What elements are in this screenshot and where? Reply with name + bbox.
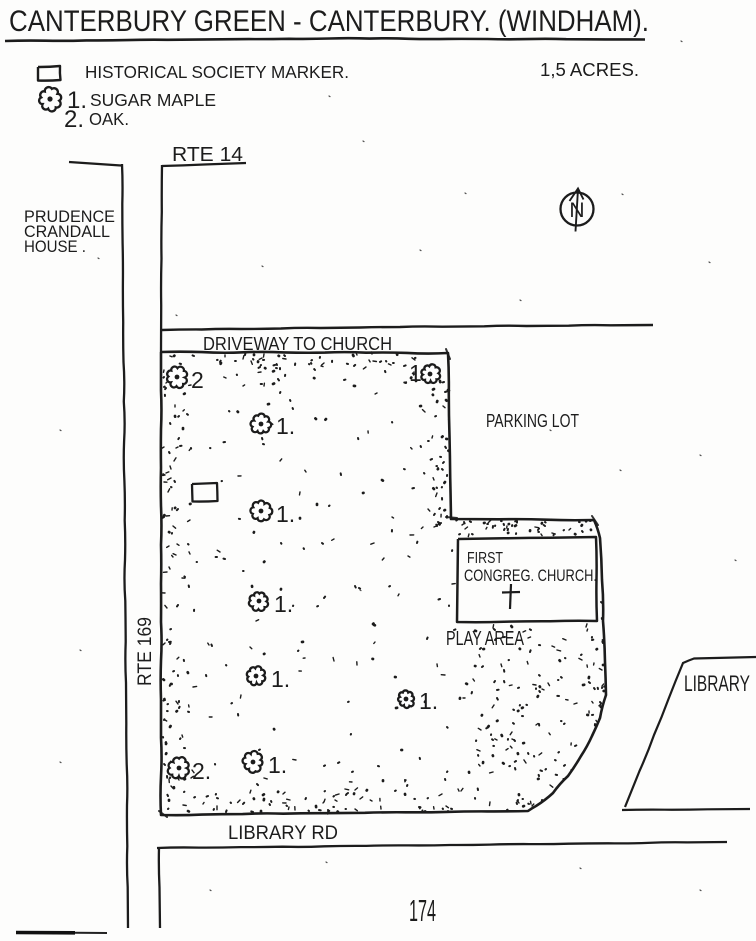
svg-text:1.: 1.	[271, 666, 290, 692]
svg-text:RTE 169: RTE 169	[135, 617, 156, 686]
svg-text:CANTERBURY GREEN - CANTERBURY.: CANTERBURY GREEN - CANTERBURY. (WINDHAM)…	[9, 5, 649, 38]
svg-text:PARKING LOT: PARKING LOT	[486, 411, 579, 431]
svg-text:CONGREG. CHURCH.: CONGREG. CHURCH.	[464, 567, 597, 585]
svg-text:1: 1	[409, 360, 422, 386]
svg-text:PLAY AREA: PLAY AREA	[446, 628, 524, 650]
svg-text:HISTORICAL SOCIETY MARKER.: HISTORICAL SOCIETY MARKER.	[85, 62, 349, 82]
svg-text:FIRST: FIRST	[467, 550, 503, 567]
svg-text:1,5 ACRES.: 1,5 ACRES.	[540, 60, 639, 80]
svg-text:2.: 2.	[64, 106, 84, 133]
svg-text:2: 2	[191, 367, 204, 393]
svg-text:1.: 1.	[268, 752, 287, 778]
svg-text:1.: 1.	[419, 688, 438, 714]
svg-text:1.: 1.	[276, 501, 295, 527]
svg-text:174: 174	[409, 893, 436, 928]
svg-text:DRIVEWAY TO CHURCH: DRIVEWAY TO CHURCH	[203, 333, 392, 354]
svg-text:1.: 1.	[274, 591, 293, 617]
svg-text:HOUSE .: HOUSE .	[24, 238, 86, 256]
svg-text:LIBRARY: LIBRARY	[684, 671, 750, 696]
svg-text:SUGAR MAPLE: SUGAR MAPLE	[90, 90, 216, 110]
svg-text:1.: 1.	[276, 413, 295, 439]
svg-text:N: N	[569, 199, 584, 222]
svg-text:LIBRARY RD: LIBRARY RD	[228, 822, 338, 844]
svg-text:2.: 2.	[192, 758, 211, 784]
svg-text:RTE 14: RTE 14	[172, 144, 243, 166]
svg-text:OAK.: OAK.	[89, 109, 129, 129]
